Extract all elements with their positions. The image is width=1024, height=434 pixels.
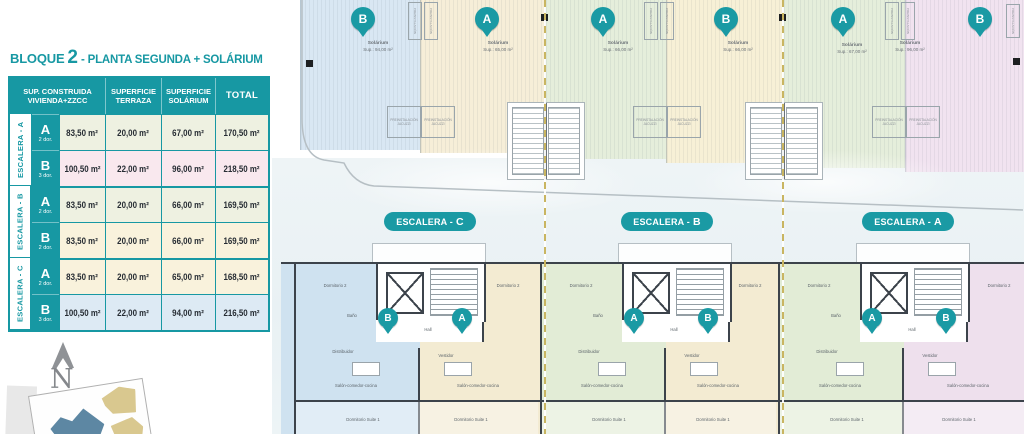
- unit-pin: A: [862, 308, 882, 328]
- pill-text: ESCALERA -: [633, 217, 690, 227]
- room-label-vestidor: Vestidor: [424, 354, 468, 359]
- value: 216,50 m²: [224, 308, 260, 318]
- pin-letter: B: [704, 313, 711, 324]
- room-label-hall: Hall: [652, 328, 696, 333]
- unit-dorms: 3 dor.: [39, 173, 53, 179]
- room-label-distribuidor: Distribuidor: [308, 350, 378, 355]
- unit-pin: B: [351, 7, 375, 31]
- room-label-salon: Salón-comedor-cocina: [908, 384, 1024, 389]
- stair-flight: [676, 268, 724, 316]
- unit-pin: A: [624, 308, 644, 328]
- room-label-dormitorio2: Dormitorio 2: [726, 284, 774, 289]
- unit-pin: B: [698, 308, 718, 328]
- cell-solarium: 96,00 m²: [161, 150, 215, 186]
- col-header-total: TOTAL: [215, 78, 268, 114]
- entry-porch: [372, 243, 486, 263]
- page-title: BLOQUE 2 - PLANTA SEGUNDA + SOLÁRIUM: [10, 50, 263, 66]
- value: 22,00 m²: [118, 308, 150, 318]
- room-label-suite: Dormitorio Suite 1: [436, 418, 506, 423]
- unit-pin: B: [378, 308, 398, 328]
- roof-stair-core: [507, 102, 585, 180]
- room-label-suite: Dormitorio Suite 1: [678, 418, 748, 423]
- room-label-distribuidor: Distribuidor: [554, 350, 624, 355]
- pin-letter: A: [868, 313, 875, 324]
- preinstall-label: PREINSTALACIÓN: [649, 8, 653, 34]
- cell-terraza: 20,00 m²: [105, 114, 161, 150]
- value: 20,00 m²: [118, 128, 150, 138]
- kitchen-island: [928, 362, 956, 376]
- unit-pin: A: [475, 7, 499, 31]
- unit-dorms: 2 dor.: [39, 281, 53, 287]
- room-area: Sup.: 65,00 m²: [483, 47, 513, 52]
- col-header-solarium: SUPERFICIE SOLÁRIUM: [161, 78, 215, 114]
- room-label-salon: Salón-comedor-cocina: [422, 384, 534, 389]
- solarium-area-label: SoláriumSup.: 65,00 m²: [458, 40, 538, 53]
- title-suffix: - PLANTA SEGUNDA + SOLÁRIUM: [81, 54, 263, 66]
- unit-badge: B3 dor.: [32, 150, 59, 186]
- room-area: Sup.: 67,00 m²: [837, 49, 867, 54]
- room-label-salon: Salón-comedor-cocina: [782, 384, 898, 389]
- unit-pin: A: [452, 308, 472, 328]
- preinstall-label: PREINSTALACIÓN: [1011, 8, 1015, 34]
- pin-letter: A: [599, 12, 608, 26]
- preinstall-label: PREINSTALACIÓN: [665, 8, 669, 34]
- kitchen-island: [598, 362, 626, 376]
- pin-letter: B: [976, 12, 985, 26]
- jacuzzi-preinstall-box: PREINSTALACIÓNJACUZZI: [421, 106, 455, 138]
- unit-badge: B3 dor.: [32, 294, 59, 330]
- value: 20,00 m²: [118, 236, 150, 246]
- apartment-a-upper: [540, 262, 626, 344]
- solarium-area-label: SoláriumSup.: 94,00 m²: [338, 40, 418, 53]
- room-label-distribuidor: Distribuidor: [792, 350, 862, 355]
- cell-total: 170,50 m²: [215, 114, 268, 150]
- value: 83,50 m²: [67, 272, 99, 282]
- cell-terraza: 20,00 m²: [105, 258, 161, 294]
- unit-badge: A2 dor.: [32, 114, 59, 150]
- room-label-bano: Baño: [578, 314, 618, 319]
- unit-pin: A: [591, 7, 615, 31]
- value: 96,00 m²: [173, 164, 205, 174]
- cell-terraza: 22,00 m²: [105, 150, 161, 186]
- unit-letter: A: [41, 195, 50, 208]
- room-area: Sup.: 96,00 m²: [895, 47, 925, 52]
- pill-letter: B: [693, 216, 701, 228]
- preinstall-tag: PREINSTALACIÓN: [644, 2, 658, 40]
- preinstall-label: PREINSTALACIÓN: [413, 8, 417, 34]
- preinstall-label: PREINSTALACIÓN: [429, 8, 433, 34]
- kitchen-island: [836, 362, 864, 376]
- pill-text: ESCALERA -: [874, 217, 931, 227]
- header-line: TOTAL: [226, 90, 258, 102]
- room-label-bano: Baño: [816, 314, 856, 319]
- value: 22,00 m²: [118, 164, 150, 174]
- pill-letter: A: [934, 216, 942, 228]
- unit-letter: B: [41, 303, 50, 316]
- title-number: 2: [67, 50, 78, 66]
- preinstall-tag: PREINSTALACIÓN: [408, 2, 422, 40]
- stair-flight: [430, 268, 478, 316]
- room-label-hall: Hall: [406, 328, 450, 333]
- room-name: Solárium: [368, 41, 389, 46]
- col-header-sup-construida: SUP. CONSTRUIDA VIVIENDA+ZZCC: [10, 78, 105, 114]
- pin-letter: A: [483, 12, 492, 26]
- room-area: Sup.: 66,00 m²: [723, 47, 753, 52]
- cell-total: 168,50 m²: [215, 258, 268, 294]
- site-parcel: [110, 415, 146, 434]
- room-name: Solárium: [728, 41, 749, 46]
- room-label-bano: Baño: [332, 314, 372, 319]
- elevator-shaft: [870, 272, 908, 314]
- cell-terraza: 20,00 m²: [105, 222, 161, 258]
- section-marker: [1013, 58, 1020, 65]
- room-label-hall: Hall: [890, 328, 934, 333]
- value: 169,50 m²: [224, 236, 260, 246]
- jacuzzi-preinstall-box: PREINSTALACIÓNJACUZZI: [633, 106, 667, 138]
- room-label-dormitorio2: Dormitorio 2: [784, 284, 854, 289]
- value: 100,50 m²: [64, 308, 100, 318]
- room-label-dormitorio2: Dormitorio 2: [480, 284, 536, 289]
- escalera-c-row-label: ESCALERA - C: [10, 258, 32, 330]
- stair-flight: [750, 107, 782, 175]
- header-line: SUP. CONSTRUIDA: [23, 87, 92, 96]
- pin-letter: B: [722, 12, 731, 26]
- room-label-salon: Salón-comedor-cocina: [298, 384, 414, 389]
- room-name: Solárium: [488, 41, 509, 46]
- unit-badge: A2 dor.: [32, 258, 59, 294]
- value: 65,00 m²: [173, 272, 205, 282]
- kitchen-island: [690, 362, 718, 376]
- room-label-dormitorio2: Dormitorio 2: [966, 284, 1024, 289]
- elevator-shaft: [386, 272, 424, 314]
- floorplan-module-escalera-c: B A Dormitorio 2 Baño Distribuidor Hall …: [294, 262, 540, 434]
- value: 66,00 m²: [173, 236, 205, 246]
- escalera-b-row-label: ESCALERA - B: [10, 186, 32, 258]
- room-label-suite: Dormitorio Suite 1: [924, 418, 994, 423]
- cell-sup: 83,50 m²: [59, 186, 105, 222]
- jacuzzi-label: JACUZZI: [882, 122, 895, 126]
- unit-dorms: 2 dor.: [39, 137, 53, 143]
- cell-sup: 83,50 m²: [59, 114, 105, 150]
- room-label-suite: Dormitorio Suite 1: [574, 418, 644, 423]
- unit-badge: A2 dor.: [32, 186, 59, 222]
- cell-total: 169,50 m²: [215, 186, 268, 222]
- header-line: SUPERFICIE: [166, 87, 211, 96]
- cell-total: 216,50 m²: [215, 294, 268, 330]
- jacuzzi-label: JACUZZI: [677, 122, 690, 126]
- cell-terraza: 20,00 m²: [105, 186, 161, 222]
- room-label-dormitorio2: Dormitorio 2: [300, 284, 370, 289]
- unit-dorms: 2 dor.: [39, 209, 53, 215]
- value: 20,00 m²: [118, 272, 150, 282]
- value: 83,50 m²: [67, 200, 99, 210]
- stair-flight: [786, 107, 818, 175]
- stair-flight: [914, 268, 962, 316]
- section-dash-line: [544, 0, 546, 434]
- value: 83,50 m²: [67, 236, 99, 246]
- room-label-suite: Dormitorio Suite 1: [328, 418, 398, 423]
- unit-letter: B: [41, 231, 50, 244]
- section-marker: [306, 60, 313, 67]
- cell-sup: 83,50 m²: [59, 222, 105, 258]
- entry-porch: [618, 243, 732, 263]
- pin-letter: B: [359, 12, 368, 26]
- apartment-b-upper: [966, 262, 1024, 344]
- site-building-highlight: [48, 406, 107, 434]
- unit-letter: A: [41, 123, 50, 136]
- unit-pin: B: [714, 7, 738, 31]
- header-line: VIVIENDA+ZZCC: [28, 96, 88, 105]
- jacuzzi-label: JACUZZI: [397, 122, 410, 126]
- pin-letter: A: [630, 313, 637, 324]
- pill-letter: C: [456, 216, 464, 228]
- value: 169,50 m²: [224, 200, 260, 210]
- stair-flight: [512, 107, 544, 175]
- escalera-a-pill: ESCALERA - A: [862, 212, 954, 231]
- jacuzzi-preinstall-box: PREINSTALACIÓNJACUZZI: [872, 106, 906, 138]
- room-label-dormitorio2: Dormitorio 2: [546, 284, 616, 289]
- site-parcel: [99, 384, 139, 417]
- preinstall-tag: PREINSTALACIÓN: [901, 2, 915, 40]
- header-line: SOLÁRIUM: [169, 96, 209, 105]
- cell-terraza: 22,00 m²: [105, 294, 161, 330]
- surface-table: SUP. CONSTRUIDA VIVIENDA+ZZCC SUPERFICIE…: [8, 76, 270, 332]
- section-dash-line: [782, 0, 784, 434]
- unit-dorms: 3 dor.: [39, 317, 53, 323]
- room-label-suite: Dormitorio Suite 1: [812, 418, 882, 423]
- escalera-c-pill: ESCALERA - C: [384, 212, 476, 231]
- kitchen-island: [352, 362, 380, 376]
- preinstall-label: PREINSTALACIÓN: [890, 8, 894, 34]
- value: 83,50 m²: [67, 128, 99, 138]
- escalera-a-row-label: ESCALERA - A: [10, 114, 32, 186]
- unit-pin: B: [936, 308, 956, 328]
- jacuzzi-label: JACUZZI: [431, 122, 444, 126]
- cell-total: 169,50 m²: [215, 222, 268, 258]
- preinstall-tag: PREINSTALACIÓN: [885, 2, 899, 40]
- title-bloque: BLOQUE: [10, 51, 64, 66]
- unit-badge: B2 dor.: [32, 222, 59, 258]
- floorplan-module-escalera-a: A B Dormitorio 2 Baño Distribuidor Hall …: [778, 262, 1024, 434]
- unit-letter: B: [41, 159, 50, 172]
- header-line: SUPERFICIE: [111, 87, 156, 96]
- apartment-a-upper: [778, 262, 864, 344]
- cell-solarium: 94,00 m²: [161, 294, 215, 330]
- value: 67,00 m²: [173, 128, 205, 138]
- cell-total: 218,50 m²: [215, 150, 268, 186]
- jacuzzi-label: JACUZZI: [643, 122, 656, 126]
- roof-stair-core: [745, 102, 823, 180]
- apartment-b-upper: [294, 262, 380, 344]
- room-area: Sup.: 94,00 m²: [363, 47, 393, 52]
- jacuzzi-preinstall-box: PREINSTALACIÓNJACUZZI: [667, 106, 701, 138]
- stair-flight: [548, 107, 580, 175]
- col-header-terraza: SUPERFICIE TERRAZA: [105, 78, 161, 114]
- cell-solarium: 66,00 m²: [161, 222, 215, 258]
- pin-letter: A: [458, 313, 465, 324]
- entry-porch: [856, 243, 970, 263]
- header-line: TERRAZA: [116, 96, 152, 105]
- escalera-b-pill: ESCALERA - B: [621, 212, 713, 231]
- plan-sheet: B A A B A B SoláriumSup.: 94,00 m² Solár…: [0, 0, 1024, 434]
- value: 20,00 m²: [118, 200, 150, 210]
- solarium-area-label: SoláriumSup.: 66,00 m²: [698, 40, 778, 53]
- pill-text: ESCALERA -: [396, 217, 453, 227]
- unit-pin: B: [968, 7, 992, 31]
- unit-dorms: 2 dor.: [39, 245, 53, 251]
- pin-letter: B: [384, 313, 391, 324]
- value: 94,00 m²: [173, 308, 205, 318]
- unit-pin: A: [831, 7, 855, 31]
- cell-solarium: 66,00 m²: [161, 186, 215, 222]
- room-label-vestidor: Vestidor: [908, 354, 952, 359]
- unit-letter: A: [41, 267, 50, 280]
- apartment-b-upper: [728, 262, 782, 344]
- jacuzzi-preinstall-box: PREINSTALACIÓNJACUZZI: [906, 106, 940, 138]
- preinstall-tag: PREINSTALACIÓN: [424, 2, 438, 40]
- value: 218,50 m²: [224, 164, 260, 174]
- value: 170,50 m²: [224, 128, 260, 138]
- preinstall-tag: PREINSTALACIÓN: [660, 2, 674, 40]
- value: 100,50 m²: [64, 164, 100, 174]
- room-label-salon: Salón-comedor-cocina: [544, 384, 660, 389]
- room-name: Solárium: [608, 41, 629, 46]
- room-label-vestidor: Vestidor: [670, 354, 714, 359]
- cell-solarium: 67,00 m²: [161, 114, 215, 150]
- floorplan-module-escalera-b: A B Dormitorio 2 Baño Distribuidor Hall …: [540, 262, 778, 434]
- elevator-shaft: [632, 272, 670, 314]
- jacuzzi-preinstall-box: PREINSTALACIÓNJACUZZI: [387, 106, 421, 138]
- room-area: Sup.: 66,00 m²: [603, 47, 633, 52]
- cell-sup: 100,50 m²: [59, 294, 105, 330]
- room-name: Solárium: [842, 43, 863, 48]
- value: 66,00 m²: [173, 200, 205, 210]
- cell-sup: 83,50 m²: [59, 258, 105, 294]
- value: 168,50 m²: [224, 272, 260, 282]
- apartment-a-upper: [482, 262, 544, 344]
- room-name: Solárium: [900, 41, 921, 46]
- solarium-area-label: SoláriumSup.: 66,00 m²: [578, 40, 658, 53]
- cell-sup: 100,50 m²: [59, 150, 105, 186]
- pin-letter: A: [839, 12, 848, 26]
- cell-solarium: 65,00 m²: [161, 258, 215, 294]
- jacuzzi-label: JACUZZI: [916, 122, 929, 126]
- solarium-area-label: SoláriumSup.: 96,00 m²: [870, 40, 950, 53]
- room-label-salon: Salón-comedor-cocina: [664, 384, 772, 389]
- preinstall-label: PREINSTALACIÓN: [906, 8, 910, 34]
- preinstall-tag: PREINSTALACIÓN: [1006, 4, 1020, 38]
- kitchen-island: [444, 362, 472, 376]
- pin-letter: B: [942, 313, 949, 324]
